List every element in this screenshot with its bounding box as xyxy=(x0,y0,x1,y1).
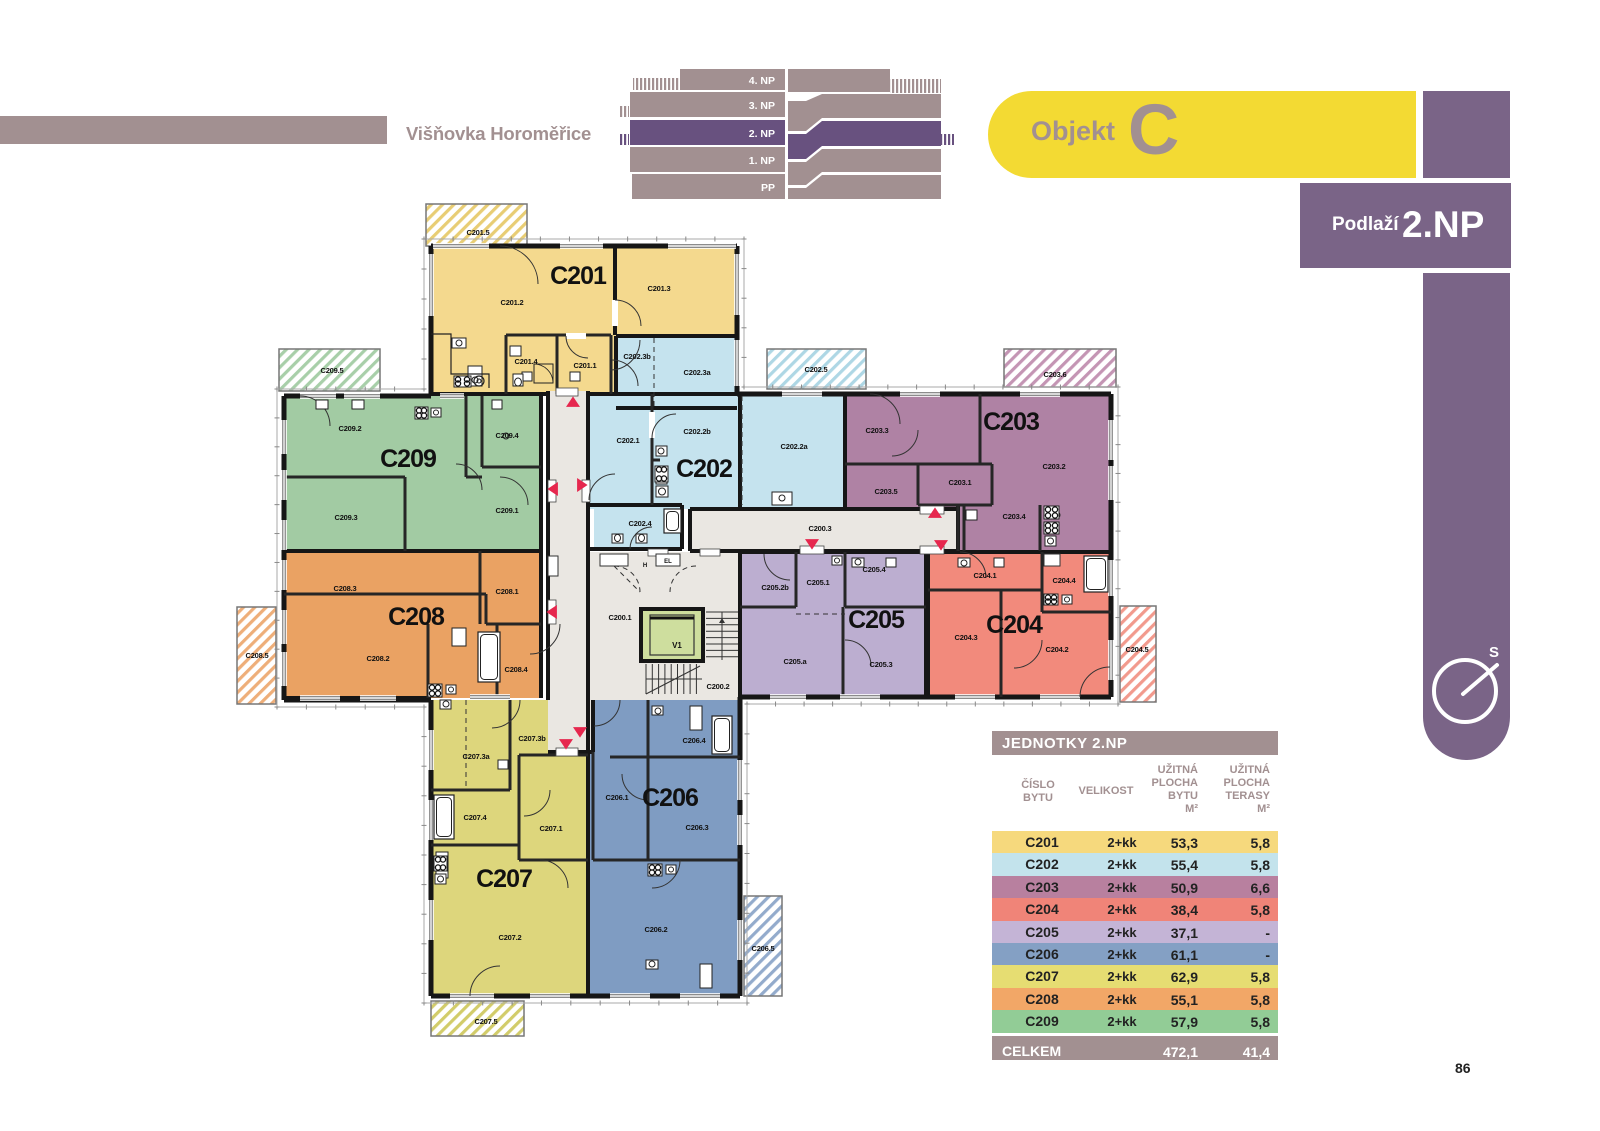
svg-text:C203.1: C203.1 xyxy=(949,478,972,487)
svg-text:C204: C204 xyxy=(986,611,1043,639)
svg-text:C205.1: C205.1 xyxy=(807,578,830,587)
svg-text:C202.1: C202.1 xyxy=(617,436,640,445)
svg-text:C208: C208 xyxy=(388,603,445,631)
svg-text:C204.3: C204.3 xyxy=(955,633,978,642)
svg-text:C206: C206 xyxy=(642,784,698,812)
svg-text:C204.2: C204.2 xyxy=(1046,645,1069,654)
svg-text:C201.5: C201.5 xyxy=(467,228,490,237)
svg-text:C205.a: C205.a xyxy=(784,657,808,666)
svg-text:C202.2b: C202.2b xyxy=(683,427,711,436)
svg-text:H: H xyxy=(643,563,647,569)
svg-text:C202.5: C202.5 xyxy=(805,365,828,374)
svg-text:C205.4: C205.4 xyxy=(863,565,887,574)
svg-text:C201.4: C201.4 xyxy=(515,357,539,366)
svg-text:C201.2: C201.2 xyxy=(501,298,524,307)
svg-text:C202: C202 xyxy=(676,455,732,483)
svg-text:C206.3: C206.3 xyxy=(686,823,709,832)
svg-text:C203.2: C203.2 xyxy=(1043,462,1066,471)
svg-text:C209.5: C209.5 xyxy=(321,366,344,375)
svg-text:C208.3: C208.3 xyxy=(334,584,357,593)
svg-text:C206.5: C206.5 xyxy=(752,944,775,953)
svg-text:C203.6: C203.6 xyxy=(1044,370,1067,379)
svg-text:EL: EL xyxy=(664,559,672,565)
svg-text:C204.4: C204.4 xyxy=(1053,576,1077,585)
svg-text:C201.1: C201.1 xyxy=(574,361,597,370)
svg-text:C200.3: C200.3 xyxy=(809,524,832,533)
svg-text:C203: C203 xyxy=(983,408,1039,436)
svg-text:C203.5: C203.5 xyxy=(875,487,898,496)
svg-text:C209: C209 xyxy=(380,445,436,473)
svg-text:C204.5: C204.5 xyxy=(1126,645,1149,654)
svg-text:C200.1: C200.1 xyxy=(609,613,632,622)
svg-text:C202.2a: C202.2a xyxy=(781,442,809,451)
svg-text:C207.4: C207.4 xyxy=(464,813,488,822)
svg-text:C203.3: C203.3 xyxy=(866,426,889,435)
svg-text:C207: C207 xyxy=(476,865,532,893)
svg-text:V1: V1 xyxy=(672,641,682,650)
svg-text:C205: C205 xyxy=(848,606,905,634)
svg-text:C206.1: C206.1 xyxy=(606,793,629,802)
svg-text:C209.4: C209.4 xyxy=(496,431,520,440)
svg-text:C200.2: C200.2 xyxy=(707,682,730,691)
svg-text:C207.2: C207.2 xyxy=(499,933,522,942)
svg-text:C201.3: C201.3 xyxy=(648,284,671,293)
svg-text:C206.2: C206.2 xyxy=(645,925,668,934)
svg-text:C206.4: C206.4 xyxy=(683,736,707,745)
svg-text:C201: C201 xyxy=(550,262,607,290)
svg-text:C205.2b: C205.2b xyxy=(761,583,789,592)
svg-text:C208.2: C208.2 xyxy=(367,654,390,663)
svg-text:C209.3: C209.3 xyxy=(335,513,358,522)
svg-text:C207.5: C207.5 xyxy=(475,1017,498,1026)
svg-text:C208.5: C208.5 xyxy=(246,651,269,660)
svg-text:C202.3b: C202.3b xyxy=(623,352,651,361)
svg-text:C207.1: C207.1 xyxy=(540,824,563,833)
svg-text:C202.4: C202.4 xyxy=(629,519,653,528)
svg-text:C203.4: C203.4 xyxy=(1003,512,1027,521)
svg-text:C208.4: C208.4 xyxy=(505,665,529,674)
svg-text:C202.3a: C202.3a xyxy=(684,368,712,377)
svg-text:C207.3a: C207.3a xyxy=(463,752,491,761)
svg-text:C207.3b: C207.3b xyxy=(518,734,546,743)
svg-text:C209.2: C209.2 xyxy=(339,424,362,433)
svg-text:C204.1: C204.1 xyxy=(974,571,997,580)
svg-text:C209.1: C209.1 xyxy=(496,506,519,515)
svg-text:C205.3: C205.3 xyxy=(870,660,893,669)
svg-text:C208.1: C208.1 xyxy=(496,587,519,596)
